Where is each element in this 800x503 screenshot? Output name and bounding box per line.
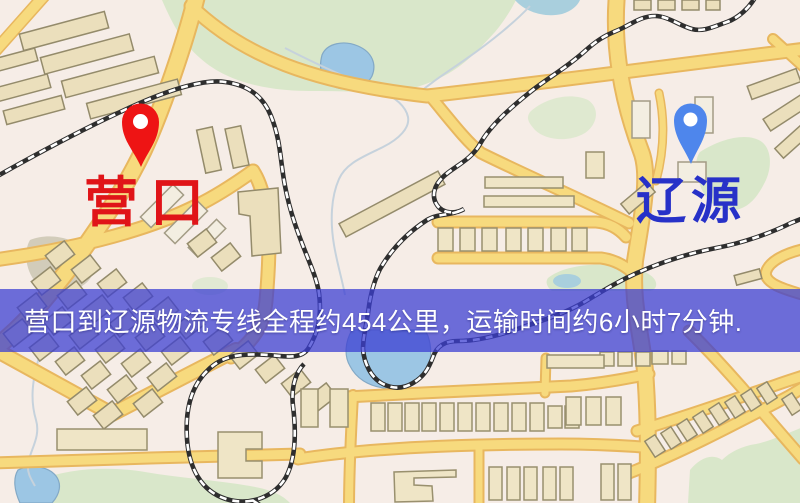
- destination-label: 辽源: [636, 176, 746, 226]
- map-canvas: [0, 0, 800, 503]
- lake-southwest: [15, 467, 60, 503]
- route-info-banner: 营口到辽源物流专线全程约454公里，运输时间约6小时7分钟.: [0, 289, 800, 352]
- origin-label: 营口: [84, 176, 216, 230]
- map-image: 营口 辽源 营口到辽源物流专线全程约454公里，运输时间约6小时7分钟.: [0, 0, 800, 503]
- route-info-text: 营口到辽源物流专线全程约454公里，运输时间约6小时7分钟.: [24, 302, 743, 339]
